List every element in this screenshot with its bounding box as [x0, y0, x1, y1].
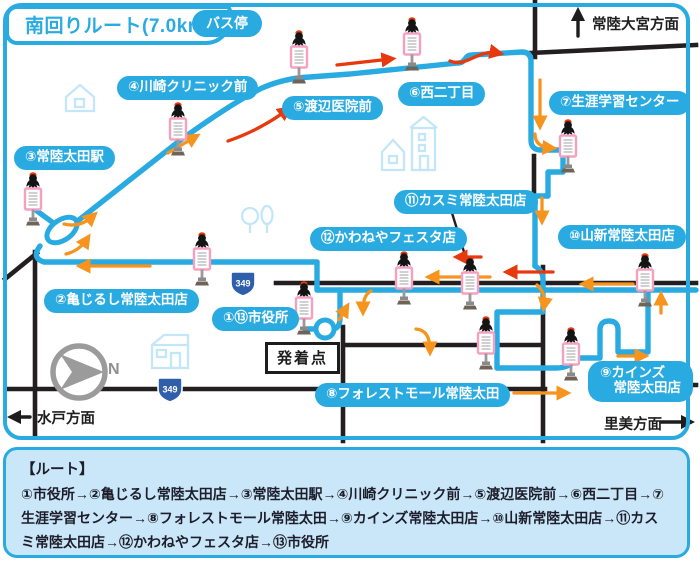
- svg-text:349: 349: [162, 385, 177, 395]
- bus-stop-icon-7: [553, 118, 583, 174]
- direction-label-hitachiomiya: 常陸大宮方面: [592, 13, 679, 34]
- stop-label-3-hitachiota-sta: ③常陸太田駅: [14, 146, 115, 170]
- bus-stop-icon-12: [389, 250, 419, 306]
- stop-label-12-kawaneya: ⑫かわねやフェスタ店: [310, 227, 467, 251]
- bus-stop-legend: バス停: [192, 10, 262, 37]
- bus-stop-icon-2: [187, 231, 217, 287]
- route-shield-349-b: 349: [158, 378, 182, 402]
- direction-label-mito: 水戸方面: [37, 407, 95, 428]
- stop-label-7-gakushu-center: ⑦生涯学習センター: [549, 91, 690, 115]
- route-info-description: ①市役所→②亀じるし常陸太田店→③常陸太田駅→④川崎クリニック前→⑤渡辺医院前→…: [21, 482, 672, 554]
- route-info-panel: 【ルート】 ①市役所→②亀じるし常陸太田店→③常陸太田駅→④川崎クリニック前→⑤…: [3, 447, 690, 558]
- stop-label-4-kawasaki-clinic: ④川崎クリニック前: [117, 76, 258, 100]
- stop-label-9-cainz: ⑨カインズ 常陸太田店: [588, 361, 693, 402]
- bus-stop-icon-10: [630, 252, 660, 308]
- stop-label-10-yamashin: ⑩山新常陸太田店: [558, 225, 686, 249]
- bus-stop-icon-3: [18, 171, 48, 227]
- start-point-label: 発着点: [265, 342, 340, 374]
- bus-stop-icon-11: [455, 255, 485, 311]
- stop-label-2-kamejirushi: ②亀じるし常陸太田店: [44, 289, 199, 313]
- svg-text:349: 349: [235, 279, 250, 289]
- bus-stop-icon-9: [556, 326, 586, 382]
- route-info-heading: 【ルート】: [21, 458, 672, 479]
- stop-label-11-kasumi: ⑪カスミ常陸太田店: [394, 190, 538, 214]
- stop-label-6-nishi-nichome: ⑥西二丁目: [398, 82, 485, 106]
- bus-stop-icon-8: [471, 315, 501, 371]
- bus-stop-icon-6: [397, 16, 427, 72]
- direction-label-satomi: 里美方面: [604, 413, 662, 434]
- route-shield-349-a: 349: [231, 272, 255, 296]
- stop-label-5-watanabe: ⑤渡辺医院前: [282, 96, 383, 120]
- route-map-page: 349 349 南回りルート(7.0km) バス停 ①⑬市役所 ②亀じるし常陸太…: [0, 0, 700, 562]
- bus-stop-icon-4: [163, 101, 193, 157]
- stop-label-1-13-shiyakusho: ①⑬市役所: [212, 307, 299, 331]
- bus-stop-icon-5: [284, 29, 314, 85]
- stop-label-8-forest-mall: ⑧フォレストモール常陸太田: [315, 383, 510, 407]
- compass-north-label: N: [108, 361, 120, 379]
- compass-icon: [53, 346, 105, 398]
